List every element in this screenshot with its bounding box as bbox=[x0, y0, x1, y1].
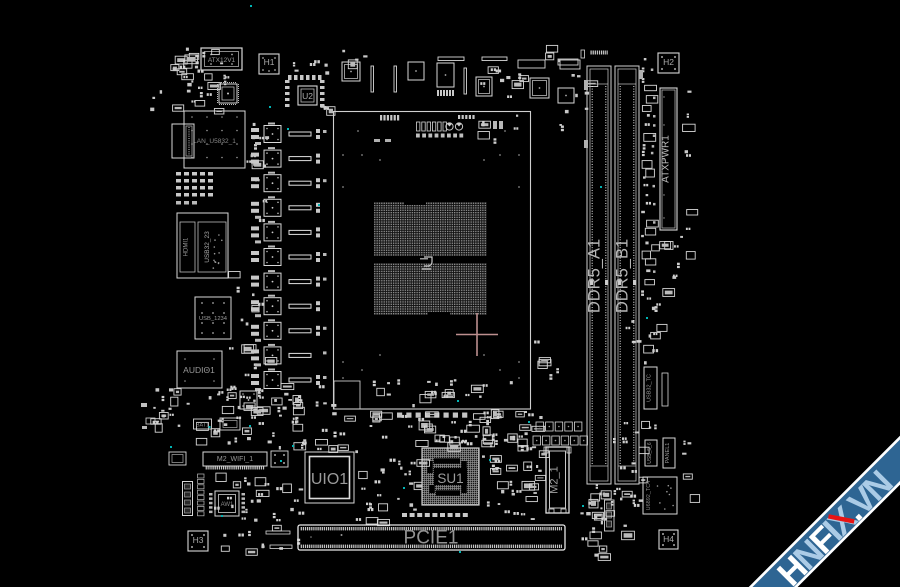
svg-text:PANEL1: PANEL1 bbox=[665, 443, 671, 464]
svg-text:DDR5_B1: DDR5_B1 bbox=[614, 239, 632, 313]
svg-text:H2: H2 bbox=[663, 57, 674, 67]
svg-text:HDMI1: HDMI1 bbox=[184, 237, 190, 256]
svg-text:USB_5_6: USB_5_6 bbox=[647, 442, 653, 464]
svg-text:USB_1234: USB_1234 bbox=[199, 316, 228, 322]
svg-text:H4: H4 bbox=[663, 534, 674, 544]
svg-text:AUDIO1: AUDIO1 bbox=[183, 365, 215, 375]
svg-text:USB32_23: USB32_23 bbox=[204, 231, 211, 263]
svg-text:LAN_U5832_1: LAN_U5832_1 bbox=[193, 138, 236, 145]
svg-text:PCIE1: PCIE1 bbox=[404, 528, 459, 549]
svg-text:M2_1: M2_1 bbox=[549, 466, 561, 494]
svg-text:H3: H3 bbox=[193, 535, 204, 545]
svg-text:SU1: SU1 bbox=[437, 471, 463, 486]
svg-text:M2_WIFI_1: M2_WIFI_1 bbox=[217, 456, 253, 463]
svg-text:U6892_TC4: U6892_TC4 bbox=[646, 481, 652, 511]
svg-text:DDR5_A1: DDR5_A1 bbox=[586, 239, 604, 313]
svg-text:H1: H1 bbox=[264, 57, 275, 67]
svg-text:U2: U2 bbox=[302, 91, 313, 101]
svg-text:ATXPWR1: ATXPWR1 bbox=[661, 135, 672, 183]
svg-text:BAT1: BAT1 bbox=[196, 423, 209, 429]
svg-text:UIO1: UIO1 bbox=[311, 471, 348, 488]
svg-text:USB32_TC: USB32_TC bbox=[647, 374, 653, 402]
